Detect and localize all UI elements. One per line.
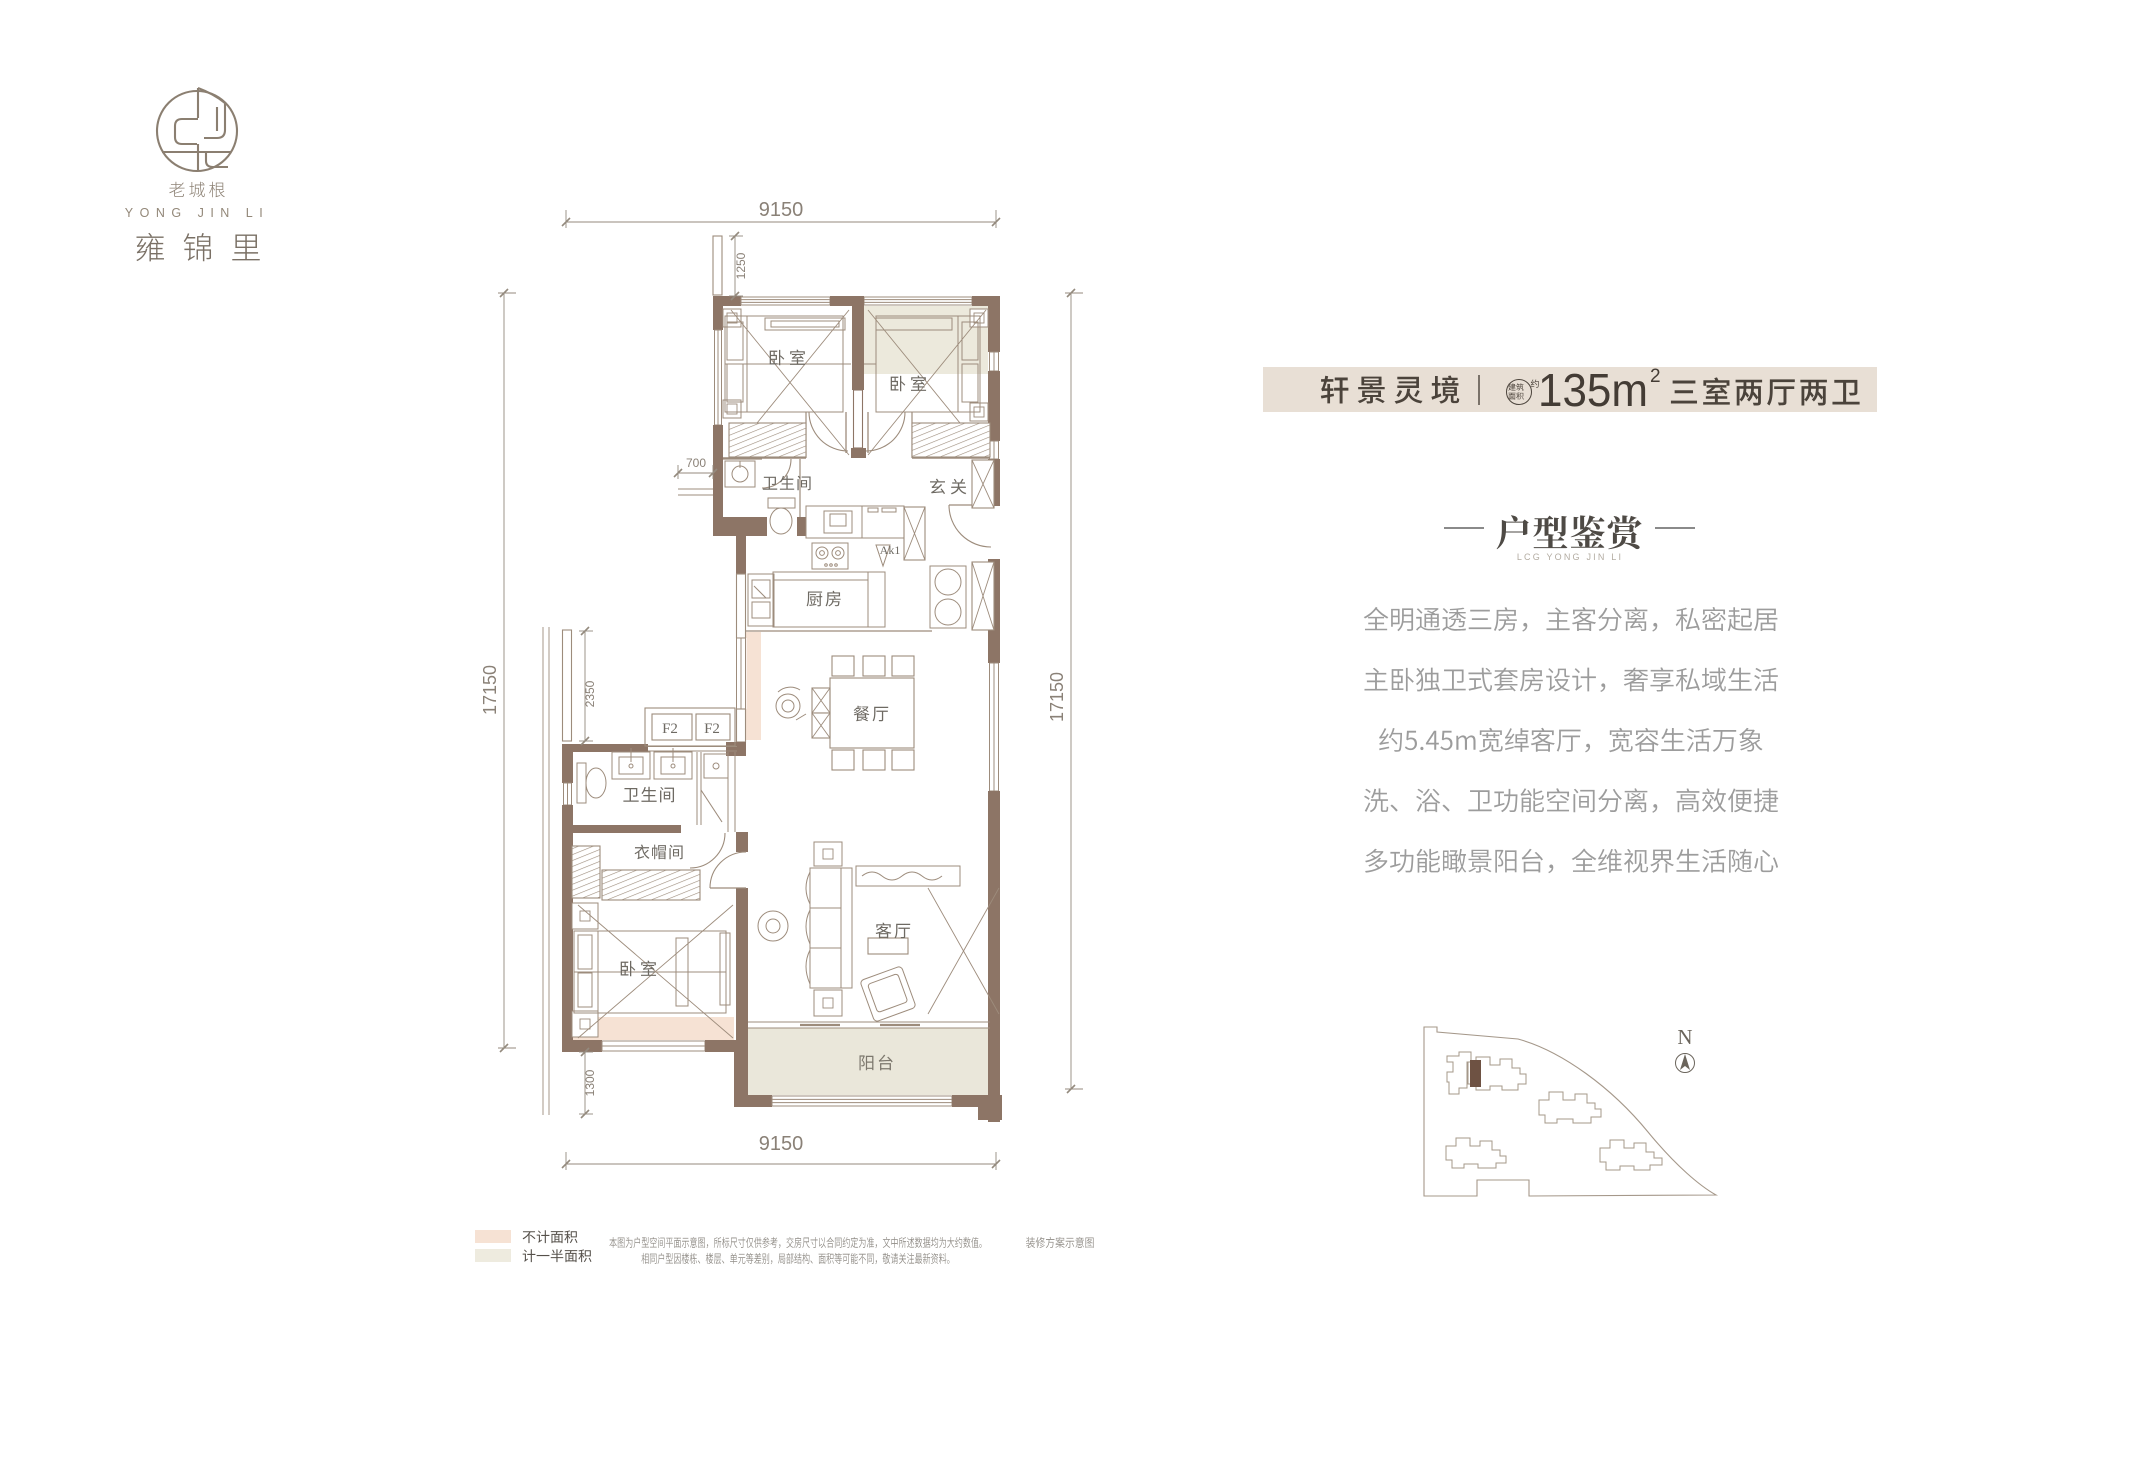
- svg-text:9150: 9150: [759, 199, 804, 221]
- svg-text:9150: 9150: [759, 1133, 804, 1155]
- svg-text:YONG JIN LI: YONG JIN LI: [125, 206, 269, 220]
- svg-text:17150: 17150: [480, 665, 500, 715]
- svg-text:1250: 1250: [734, 252, 748, 279]
- svg-text:17150: 17150: [1047, 672, 1067, 722]
- svg-text:Ak1: Ak1: [880, 543, 901, 557]
- svg-text:700: 700: [686, 456, 706, 470]
- svg-text:F2: F2: [704, 721, 720, 737]
- svg-text:LCG YONG JIN LI: LCG YONG JIN LI: [1517, 552, 1623, 562]
- svg-text:1300: 1300: [583, 1069, 597, 1096]
- svg-text:135m: 135m: [1538, 364, 1648, 416]
- svg-text:N: N: [1677, 1025, 1692, 1049]
- svg-text:2: 2: [1650, 366, 1661, 387]
- svg-text:2350: 2350: [583, 680, 597, 707]
- svg-text:F2: F2: [662, 721, 678, 737]
